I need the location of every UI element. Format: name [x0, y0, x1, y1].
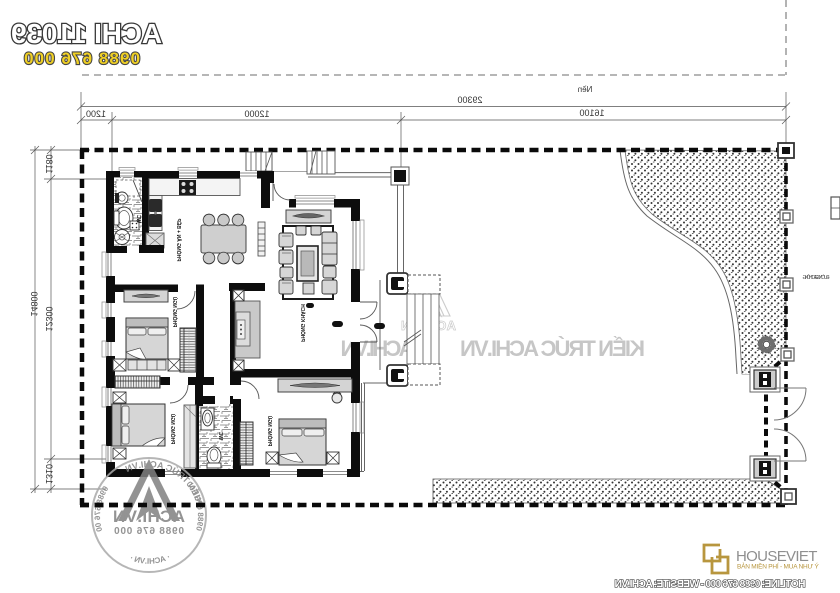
svg-text:HOTLINE: 0988 676 000 - WEBSIT: HOTLINE: 0988 676 000 - WEBSITE: ACHI.VN [615, 578, 806, 590]
svg-text:ACHI.VN: ACHI.VN [113, 507, 185, 526]
svg-text:ĐƯỜNG GIAO THÔNG: ĐƯỜNG GIAO THÔNG [802, 274, 829, 281]
svg-text:12000: 12000 [244, 109, 269, 119]
svg-text:WC: WC [217, 431, 223, 440]
svg-text:14800: 14800 [29, 291, 39, 316]
svg-text:PHÒNG KHÁCH: PHÒNG KHÁCH [299, 304, 307, 342]
svg-text:1310: 1310 [44, 464, 54, 484]
svg-text:1180: 1180 [44, 154, 54, 173]
svg-text:0988 676 000: 0988 676 000 [114, 526, 184, 537]
svg-text:ACHI 11039: ACHI 11039 [10, 18, 162, 49]
svg-text:12300: 12300 [44, 306, 54, 331]
svg-text:Nền: Nền [578, 85, 593, 94]
svg-text:0988 676 000: 0988 676 000 [24, 49, 140, 68]
svg-text:16100: 16100 [579, 108, 604, 118]
svg-text:WC: WC [135, 214, 141, 223]
svg-text:PHÒNG NGỦ: PHÒNG NGỦ [266, 415, 274, 446]
svg-text:KIẾN TRÚC ACHI.VN: KIẾN TRÚC ACHI.VN [459, 336, 645, 361]
svg-text:29300: 29300 [457, 95, 482, 105]
svg-text:PHÒNG NGỦ: PHÒNG NGỦ [169, 413, 177, 444]
svg-text:PHÒNG ĂN + BẾP: PHÒNG ĂN + BẾP [175, 218, 183, 262]
svg-text:1200: 1200 [86, 109, 106, 119]
svg-text:HOUSEVIET: HOUSEVIET [736, 548, 820, 565]
svg-text:PHÒNG NGỦ: PHÒNG NGỦ [171, 296, 179, 327]
